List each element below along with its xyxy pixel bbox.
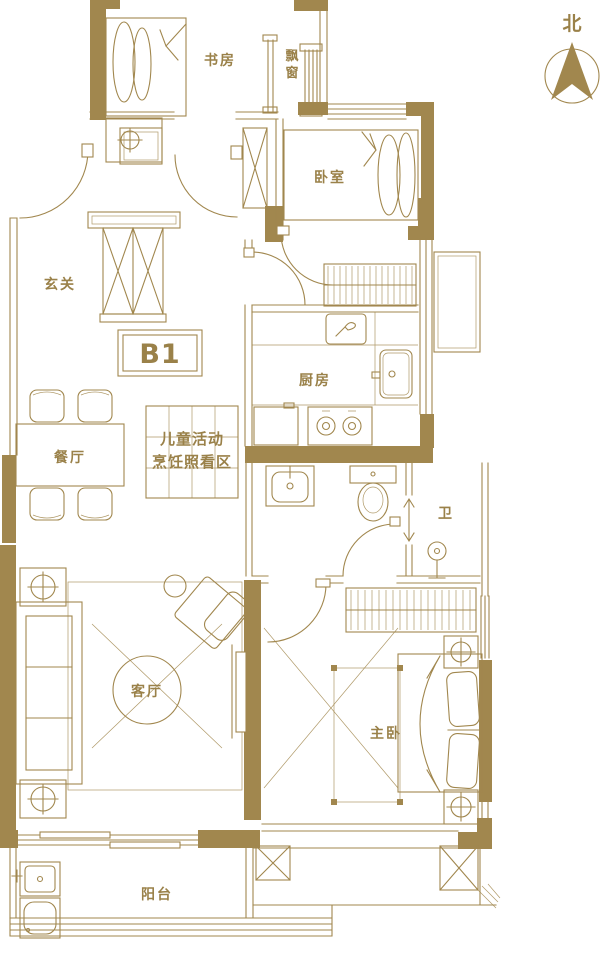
ac-platform-box — [440, 846, 500, 908]
kitchen-service-platform — [434, 252, 480, 352]
corridor-rack — [324, 264, 416, 306]
nightstand-top — [444, 636, 478, 668]
label-foyer: 玄关 — [44, 276, 76, 293]
hall-closet — [243, 128, 267, 208]
bedroom-bed — [284, 130, 418, 220]
compass — [545, 42, 599, 103]
master-door — [268, 579, 330, 642]
entry-door — [20, 144, 93, 218]
label-children-zone-line1: 儿童活动 — [159, 430, 224, 448]
label-balcony: 阳台 — [141, 886, 173, 903]
foyer-cabinet — [120, 128, 162, 164]
study-bed — [106, 18, 186, 116]
study-dresser — [106, 118, 162, 162]
side-table-lamp-bottom — [20, 780, 66, 818]
study-door — [175, 146, 242, 217]
label-kitchen: 厨房 — [299, 372, 331, 389]
label-bathroom: 卫 — [438, 506, 454, 522]
sofa — [16, 602, 82, 784]
floor-plan-drawing: 书房 飘 窗 卧室 玄关 厨房 餐厅 儿童活动 烹饪照看区 卫 客厅 主卧 阳台… — [0, 0, 600, 957]
label-dining: 餐厅 — [53, 449, 86, 466]
bath-sliding-door-arrow — [404, 499, 414, 541]
label-bay-window-char1: 飘 — [285, 49, 298, 64]
tv — [232, 645, 246, 738]
kitchen-door — [244, 248, 305, 305]
side-table-lamp-top — [20, 568, 66, 606]
foyer-closet — [88, 212, 180, 322]
floor-lamp — [164, 575, 186, 597]
vanity-sink — [266, 466, 314, 506]
balcony-basin — [12, 862, 60, 896]
label-unit-code: B1 — [139, 339, 180, 370]
toilet-door — [343, 517, 400, 576]
children-zone-grid — [146, 406, 238, 498]
kitchen-counter — [252, 312, 418, 405]
label-children-zone-line2: 烹饪照看区 — [152, 453, 232, 471]
cutting-board — [326, 314, 366, 344]
label-bay-window-char2: 窗 — [285, 65, 298, 81]
label-study: 书房 — [204, 52, 236, 69]
label-master: 主卧 — [370, 725, 402, 742]
balcony-railing — [10, 905, 332, 936]
master-rug — [264, 628, 403, 805]
master-wardrobe — [346, 588, 476, 632]
master-bed — [398, 654, 482, 792]
shower-head — [428, 542, 446, 578]
nightstand-bottom — [444, 790, 478, 824]
fridge — [254, 403, 298, 445]
floor-plan-page: 书房 飘 窗 卧室 玄关 厨房 餐厅 儿童活动 烹饪照看区 卫 客厅 主卧 阳台… — [0, 0, 600, 957]
toilet — [350, 466, 396, 521]
kitchen-sink — [372, 350, 412, 398]
balcony-sliding-door — [18, 832, 198, 848]
stove — [308, 407, 372, 445]
label-north: 北 — [562, 13, 581, 35]
bedroom-window — [328, 104, 406, 119]
label-living: 客厅 — [130, 683, 163, 700]
bedroom-door — [277, 226, 333, 285]
balcony-column — [256, 846, 290, 880]
north-arrow-icon — [551, 42, 593, 100]
label-bedroom: 卧室 — [314, 169, 346, 186]
